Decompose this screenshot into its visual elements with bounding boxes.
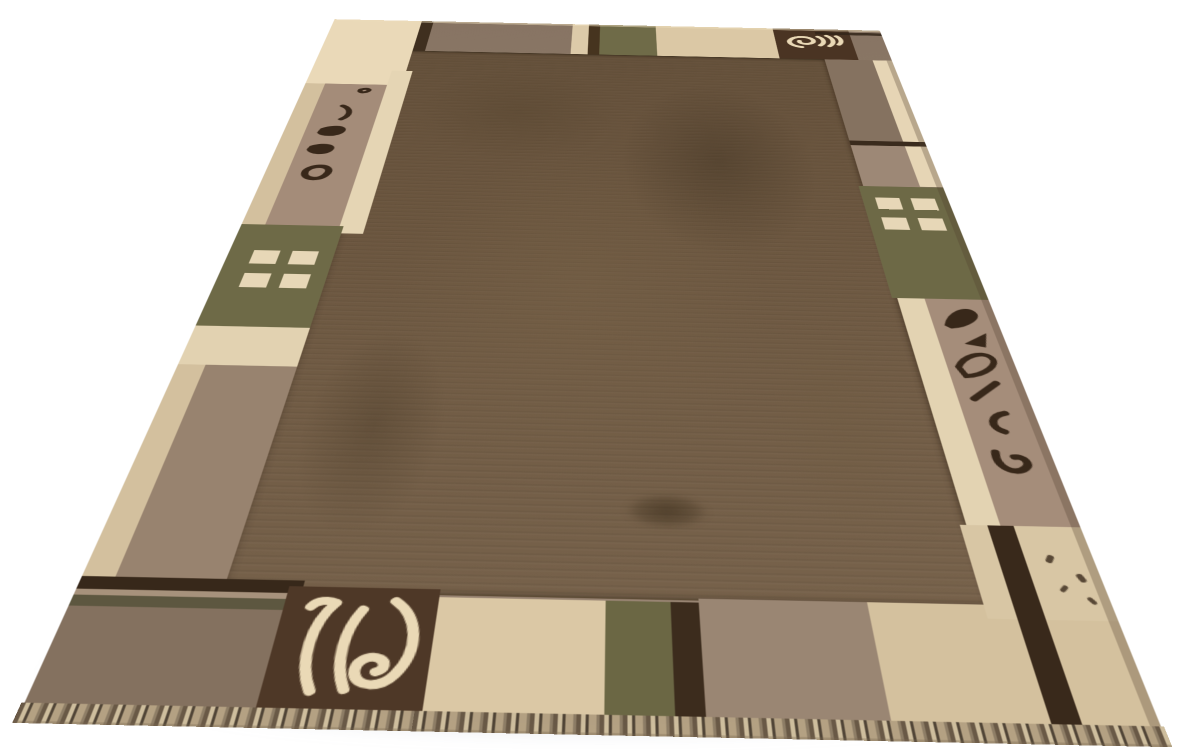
window-pane xyxy=(881,217,910,230)
window-pane xyxy=(239,273,272,288)
window-pane xyxy=(875,197,903,209)
double-curve-leaf-spiral-motif xyxy=(256,586,441,711)
border-cream-rect-bottom xyxy=(422,597,605,715)
border-taupe-patch-bottom xyxy=(698,599,891,721)
photo-scene xyxy=(0,0,1200,750)
window-pane xyxy=(288,251,319,265)
border-olive-square-top xyxy=(599,25,657,56)
border-motif-square-bottom xyxy=(256,586,441,711)
rug-photo xyxy=(25,19,1161,726)
window-pane xyxy=(279,274,311,289)
border-dark-stripe-top-b xyxy=(588,25,601,55)
border-cream-stripe-top xyxy=(571,24,590,54)
border-beige-patch-top xyxy=(656,26,780,58)
border-cream-bar-left xyxy=(178,325,310,366)
window-pane xyxy=(918,218,948,231)
window-pane xyxy=(910,198,939,210)
window-pane xyxy=(249,250,281,264)
border-taupe-corner-bottom-left xyxy=(25,606,290,708)
border-olive-square-bottom xyxy=(604,601,675,717)
